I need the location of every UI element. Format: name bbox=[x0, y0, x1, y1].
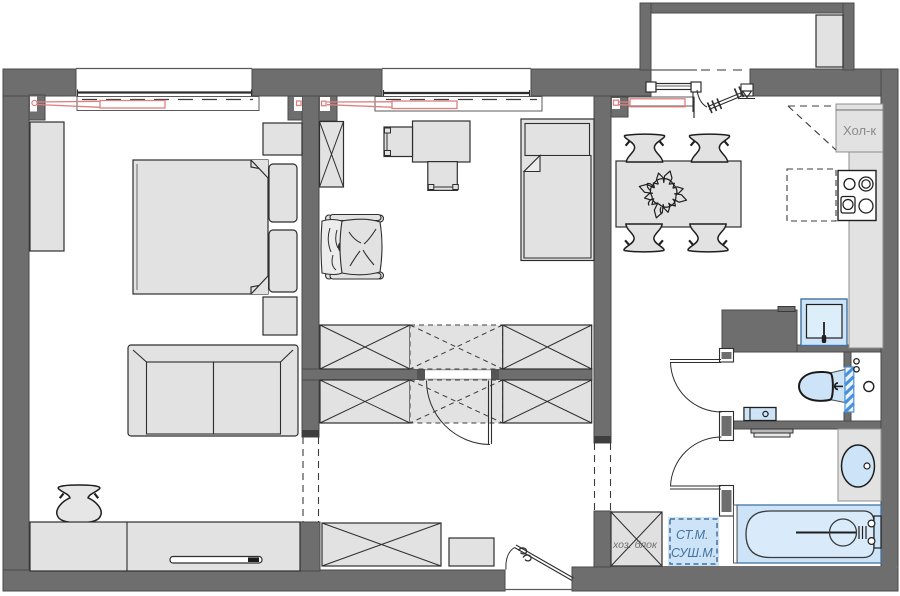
svg-text:Хол-к: Хол-к bbox=[843, 123, 876, 138]
svg-text:СТ.М.: СТ.М. bbox=[676, 528, 709, 542]
svg-text:СУШ.М.: СУШ.М. bbox=[671, 546, 716, 560]
svg-text:хоз. блок: хоз. блок bbox=[612, 539, 658, 551]
